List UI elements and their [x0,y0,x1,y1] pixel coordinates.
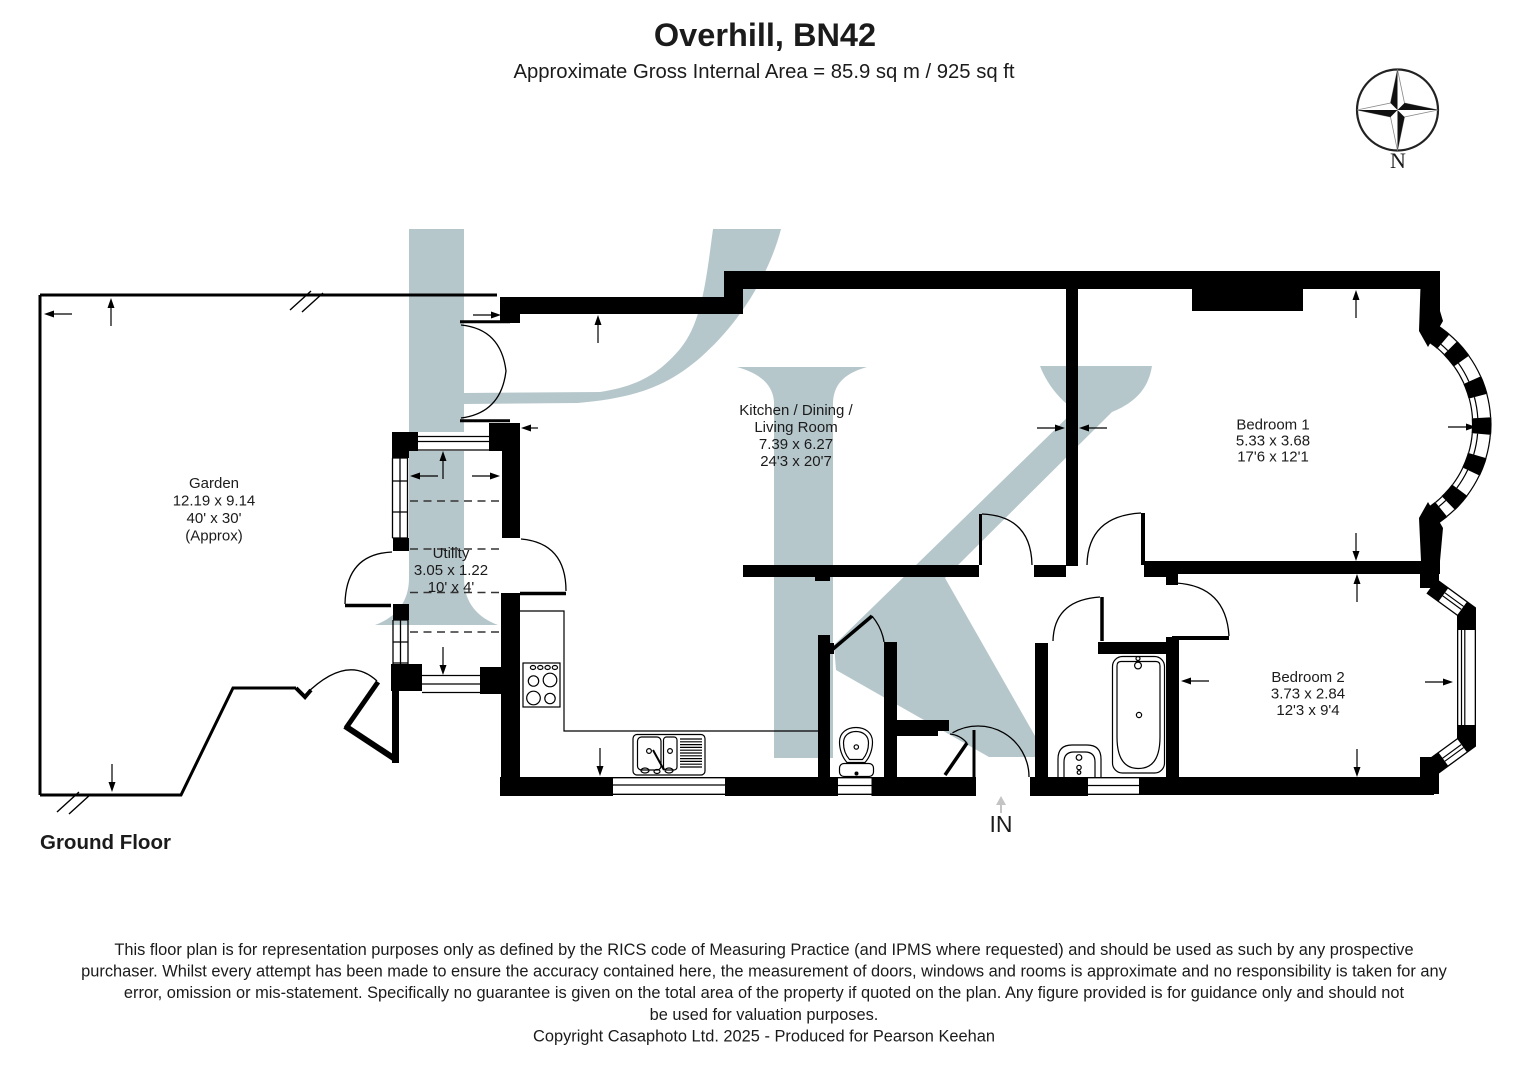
svg-text:Ground Floor: Ground Floor [40,831,171,854]
svg-text:12'3 x 9'4: 12'3 x 9'4 [1276,702,1339,719]
svg-text:Kitchen / Dining /: Kitchen / Dining / [739,402,853,419]
svg-text:3.73 x 2.84: 3.73 x 2.84 [1271,686,1345,703]
svg-text:3.05 x 1.22: 3.05 x 1.22 [414,562,488,579]
svg-text:7.39 x 6.27: 7.39 x 6.27 [759,436,833,453]
svg-text:17'6 x 12'1: 17'6 x 12'1 [1237,449,1309,466]
svg-text:be used for valuation purposes: be used for valuation purposes. [650,1006,879,1024]
svg-text:Bedroom 1: Bedroom 1 [1236,417,1309,434]
svg-text:12.19 x 9.14: 12.19 x 9.14 [173,493,256,510]
svg-text:Garden: Garden [189,475,239,492]
svg-text:Copyright Casaphoto Ltd. 2025: Copyright Casaphoto Ltd. 2025 - Produced… [533,1027,995,1045]
svg-text:40' x 30': 40' x 30' [187,510,242,527]
svg-text:Utility: Utility [433,545,470,562]
svg-text:error, omission or mis-stateme: error, omission or mis-statement. Specif… [124,984,1405,1002]
svg-text:IN: IN [990,811,1013,837]
svg-text:(Approx): (Approx) [185,528,243,545]
svg-text:24'3 x 20'7: 24'3 x 20'7 [760,453,832,470]
svg-text:Approximate Gross Internal Are: Approximate Gross Internal Area = 85.9 s… [513,61,1014,83]
svg-text:purchaser. Whilst every attemp: purchaser. Whilst every attempt has been… [81,963,1448,981]
svg-text:10' x 4': 10' x 4' [428,579,475,596]
svg-text:N: N [1390,148,1406,173]
svg-text:This floor plan is for represe: This floor plan is for representation pu… [114,941,1413,959]
svg-text:Bedroom 2: Bedroom 2 [1271,669,1344,686]
svg-text:Overhill, BN42: Overhill, BN42 [654,17,876,53]
svg-text:Living Room: Living Room [754,419,837,436]
svg-text:5.33 x 3.68: 5.33 x 3.68 [1236,433,1310,450]
